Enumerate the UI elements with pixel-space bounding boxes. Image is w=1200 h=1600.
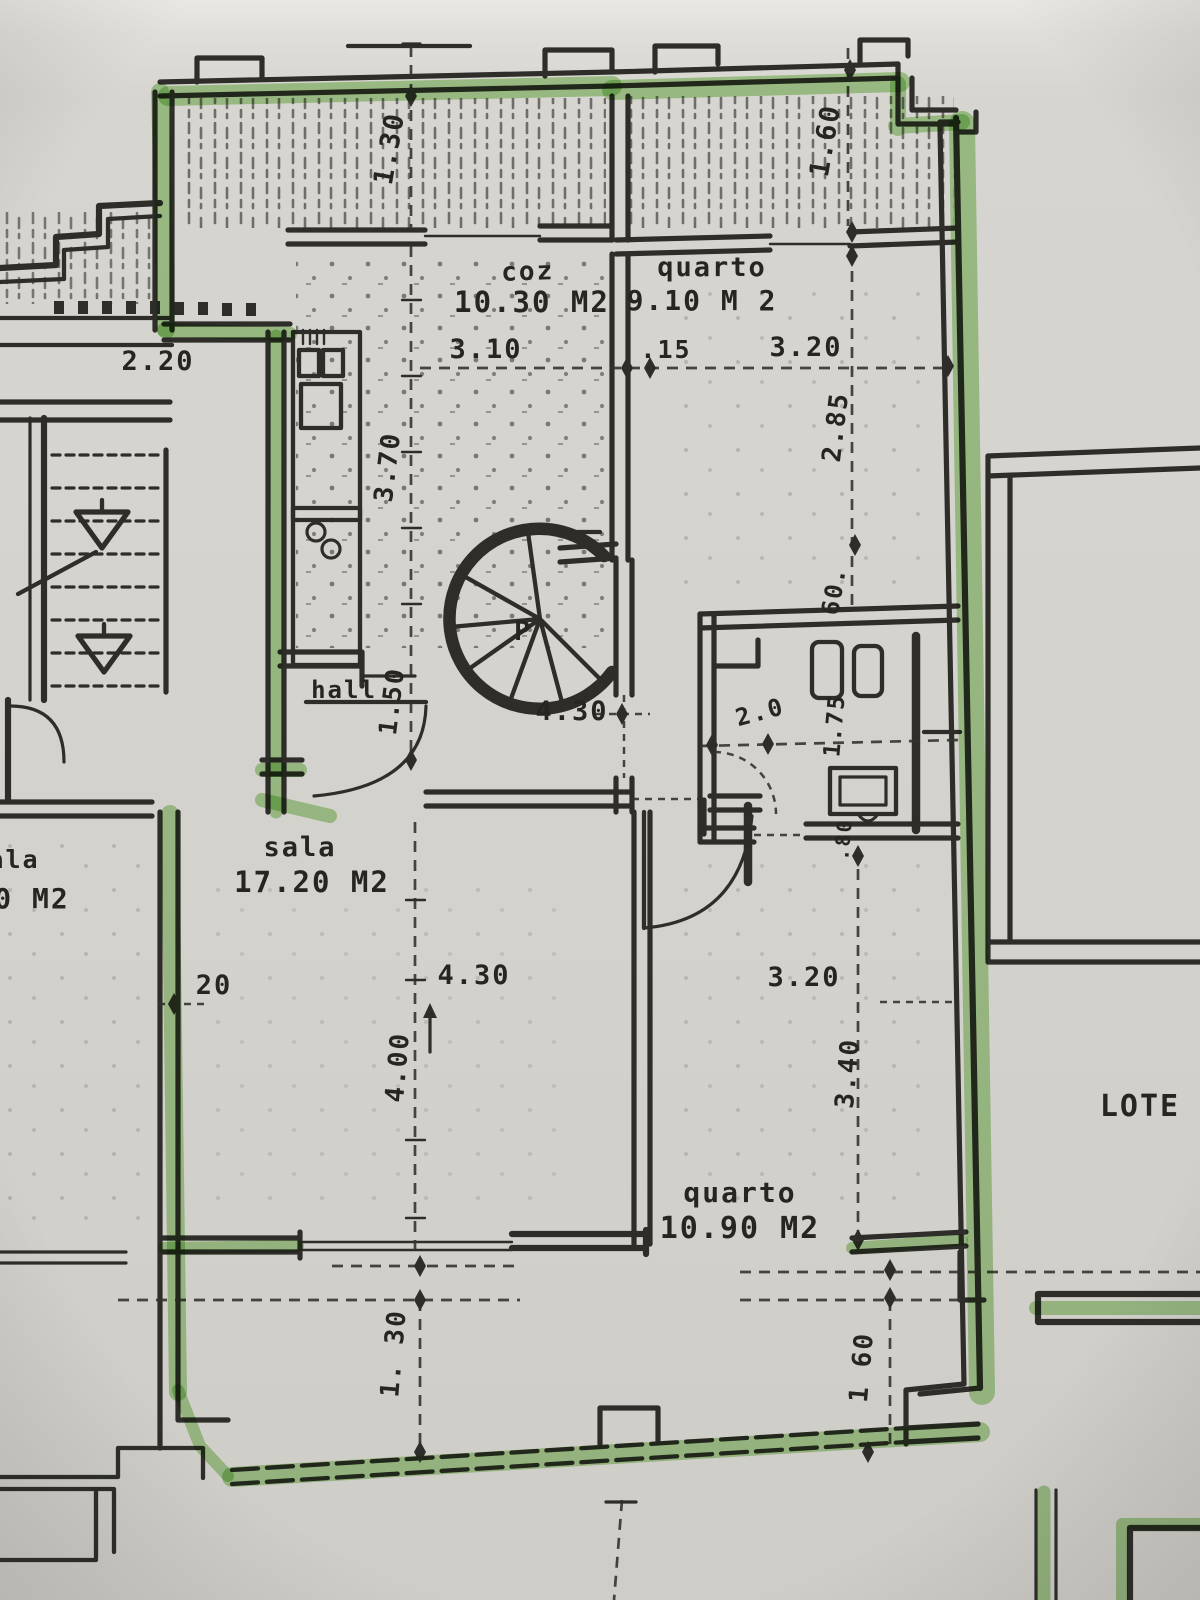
floor-plan-photo: coz 10.30 M2 quarto 9.10 M 2 sala 17.20 …	[0, 0, 1200, 1600]
photo-vignette	[0, 0, 1200, 1600]
floor-plan-canvas: coz 10.30 M2 quarto 9.10 M 2 sala 17.20 …	[0, 0, 1200, 1600]
